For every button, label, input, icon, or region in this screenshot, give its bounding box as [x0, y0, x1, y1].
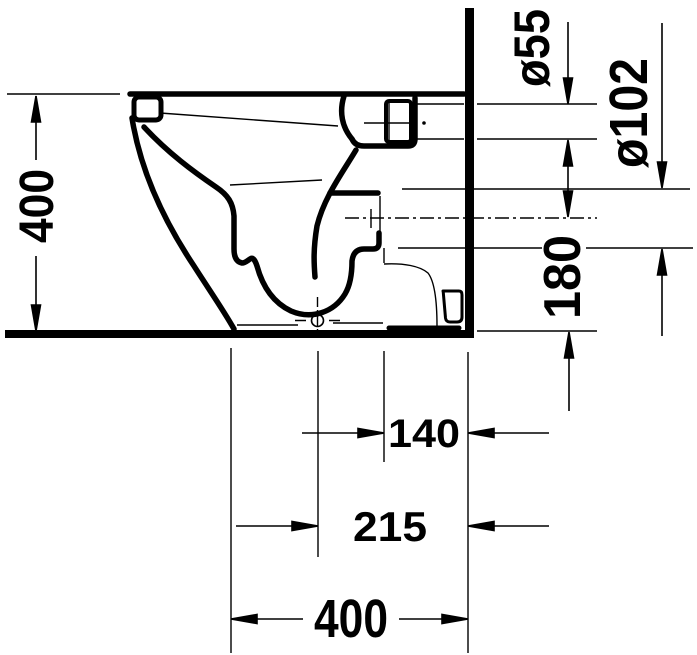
arrow-up-icon [565, 332, 574, 358]
dim-label-outlet-axis-to-wall: 140 [388, 412, 460, 456]
dim-label-depth: 400 [314, 589, 388, 649]
arrow-left-icon [468, 429, 494, 438]
arrow-right-icon [358, 429, 384, 438]
dim-label-spigot-diameter: ø55 [504, 9, 560, 87]
arrow-right-icon [442, 615, 468, 624]
arrow-down-icon [564, 191, 573, 217]
arrow-left-icon [231, 615, 257, 624]
toilet-dimension-drawing: 400 ø55 ø102 180 140 215 400 [0, 0, 697, 655]
arrow-down-icon [564, 78, 573, 104]
bowl-inner-wall [144, 127, 379, 315]
base-rear-outline [384, 264, 437, 326]
trap-inner-wall [314, 150, 356, 277]
spigot-center-dot [422, 121, 426, 125]
dim-label-outlet-diameter: ø102 [599, 58, 659, 168]
arrow-up-icon [564, 140, 573, 166]
flush-spigot-inner [386, 101, 411, 142]
rim-section [134, 97, 161, 120]
dim-label-height: 400 [11, 169, 64, 243]
arrow-right-icon [292, 522, 318, 531]
rim-rear-inner [342, 96, 352, 139]
extension-lines [7, 94, 468, 653]
arrow-up-icon [658, 249, 667, 275]
water-line [230, 180, 322, 185]
dim-label-outlet-axis-height: 180 [534, 235, 592, 319]
rear-foot-slot [443, 291, 462, 322]
technical-drawing-canvas: 400 ø55 ø102 180 140 215 400 [0, 0, 697, 655]
front-face [132, 118, 234, 329]
dim-label-drain-center-to-wall: 215 [353, 503, 427, 550]
toilet-outline [130, 94, 464, 329]
arrow-down-icon [32, 305, 41, 331]
arrow-up-icon [32, 96, 41, 122]
flush-spigot-outer [352, 98, 415, 146]
arrow-left-icon [468, 522, 494, 531]
seat-line [160, 113, 338, 126]
